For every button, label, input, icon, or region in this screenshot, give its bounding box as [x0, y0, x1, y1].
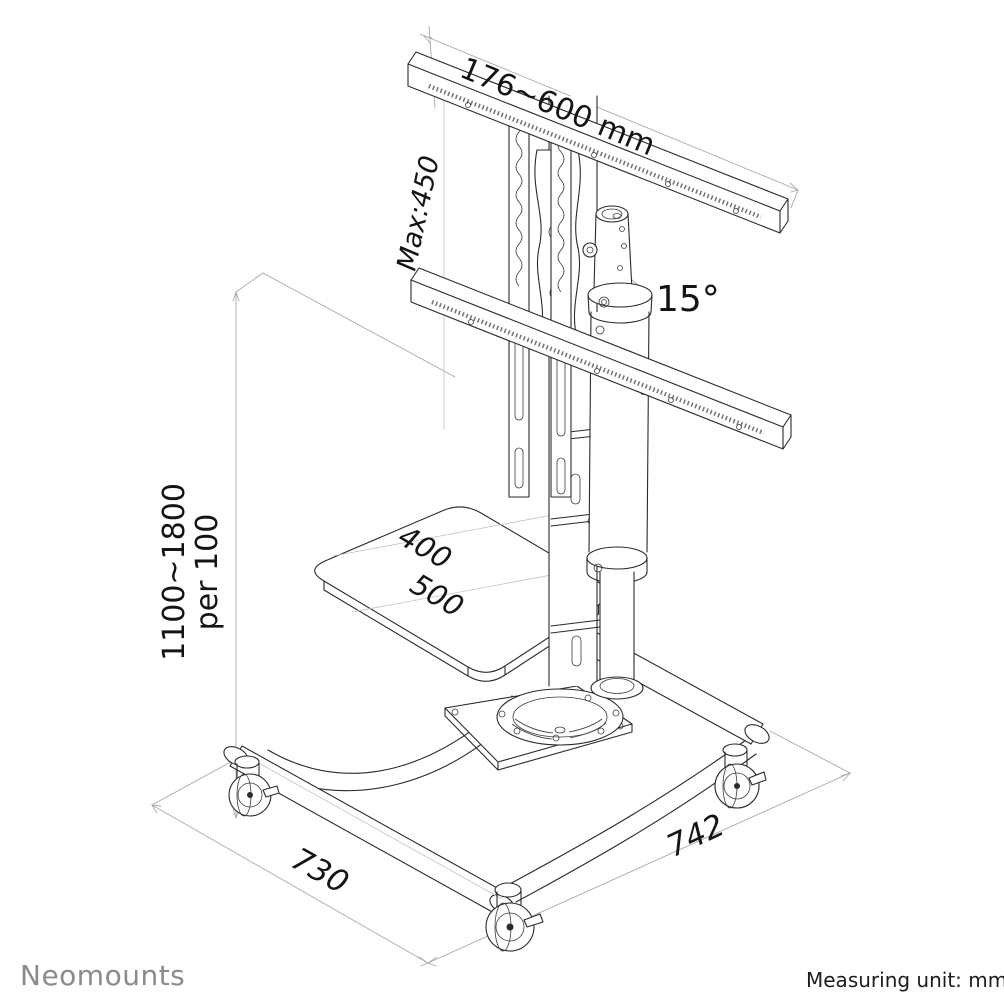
- label-height-increment: per 100: [190, 514, 225, 631]
- front-rail: [230, 746, 508, 914]
- label-height-range: 1100~1800: [157, 483, 192, 661]
- footer: Neomounts Measuring unit: mm: [20, 959, 1004, 992]
- label-mount-height: Max:450: [391, 153, 446, 273]
- caster-rear-right: [715, 744, 766, 808]
- dimension-lines: [152, 26, 850, 966]
- label-base-left: 730: [285, 841, 354, 901]
- technical-drawing: 176~600 mm Max:450 15° 1100~1800 per 100…: [0, 0, 1004, 1004]
- brand-logo: Neomounts: [20, 959, 185, 992]
- tilt-knob: [583, 243, 597, 257]
- measuring-unit-note: Measuring unit: mm: [806, 968, 1004, 992]
- label-base-right: 742: [661, 807, 730, 865]
- label-tilt-angle: 15°: [656, 279, 720, 320]
- floor-stand-diagram: 176~600 mm Max:450 15° 1100~1800 per 100…: [0, 0, 1004, 1004]
- bracket-strip-right: [551, 112, 571, 497]
